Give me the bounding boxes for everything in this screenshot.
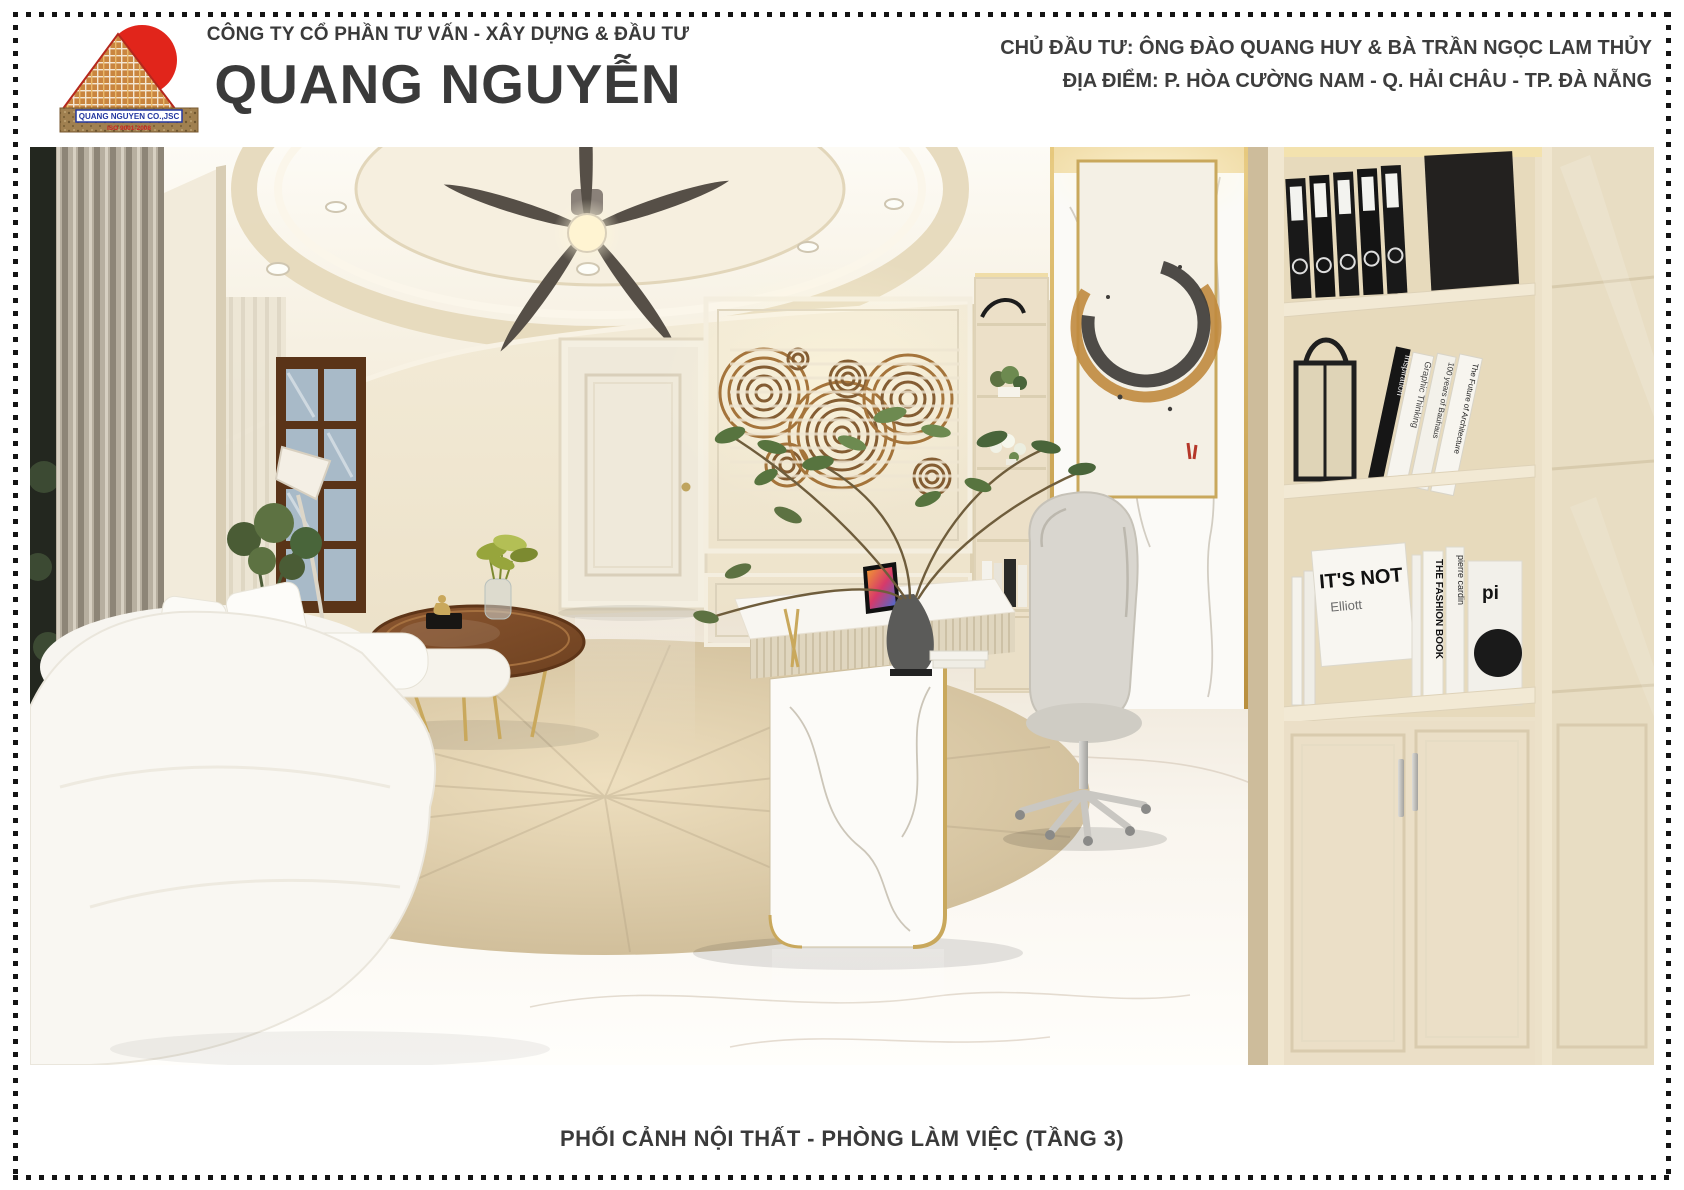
company-logo: QUANG NGUYEN CO.,JSC ISO 9001-2008 [58, 20, 200, 136]
book-title: pierre cardin [1456, 555, 1466, 605]
desk-reflection [772, 949, 944, 1019]
door-reflection [575, 617, 695, 747]
investor-line: CHỦ ĐẦU TƯ: ÔNG ĐÀO QUANG HUY & BÀ TRẦN … [1000, 32, 1652, 65]
company-titles: CÔNG TY CỔ PHẦN TƯ VẤN - XÂY DỰNG & ĐẦU … [198, 24, 698, 116]
presentation-sheet: QUANG NGUYEN CO.,JSC ISO 9001-2008 CÔNG … [0, 0, 1684, 1190]
lower-cabinet [1282, 721, 1535, 1065]
cabinet-handle [1398, 759, 1404, 817]
bookshelf: Inspiration Graphic Thinking 100 years o… [1268, 147, 1654, 1065]
glass-cabinet [1542, 147, 1654, 1065]
lantern [1296, 340, 1354, 479]
dotted-border-left [13, 12, 18, 1180]
desk-marble-base [770, 659, 945, 947]
location-line: ĐỊA ĐIỂM: P. HÒA CƯỜNG NAM - Q. HẢI CHÂU… [1000, 65, 1652, 98]
sheet-caption: PHỐI CẢNH NỘI THẤT - PHÒNG LÀM VIỆC (TẦN… [0, 1126, 1684, 1152]
abstract-painting [1049, 161, 1244, 497]
dotted-border-right [1666, 12, 1671, 1180]
logo-iso-text: ISO 9001-2008 [107, 125, 151, 132]
storage-box [1424, 151, 1519, 291]
cabinet-handle [1412, 753, 1418, 811]
dotted-border-top [13, 12, 1671, 17]
title-block: QUANG NGUYEN CO.,JSC ISO 9001-2008 CÔNG … [30, 18, 1654, 146]
fan-light [568, 214, 606, 252]
door-knob [682, 483, 691, 492]
book-title: pi [1482, 583, 1499, 604]
shelf-stile [1268, 147, 1284, 1065]
company-tagline: CÔNG TY CỔ PHẦN TƯ VẤN - XÂY DỰNG & ĐẦU … [198, 24, 698, 46]
company-name: QUANG NGUYỄN [198, 52, 698, 116]
project-info: CHỦ ĐẦU TƯ: ÔNG ĐÀO QUANG HUY & BÀ TRẦN … [1000, 32, 1652, 98]
interior-render: Inspiration Graphic Thinking 100 years o… [30, 147, 1654, 1065]
book-title: Elliott [1330, 597, 1363, 615]
book-title: THE FASHION BOOK [1433, 559, 1444, 660]
panel-seam [1248, 147, 1268, 1065]
dotted-border-bottom [13, 1175, 1671, 1180]
logo-banner-text: QUANG NGUYEN CO.,JSC [79, 112, 180, 121]
